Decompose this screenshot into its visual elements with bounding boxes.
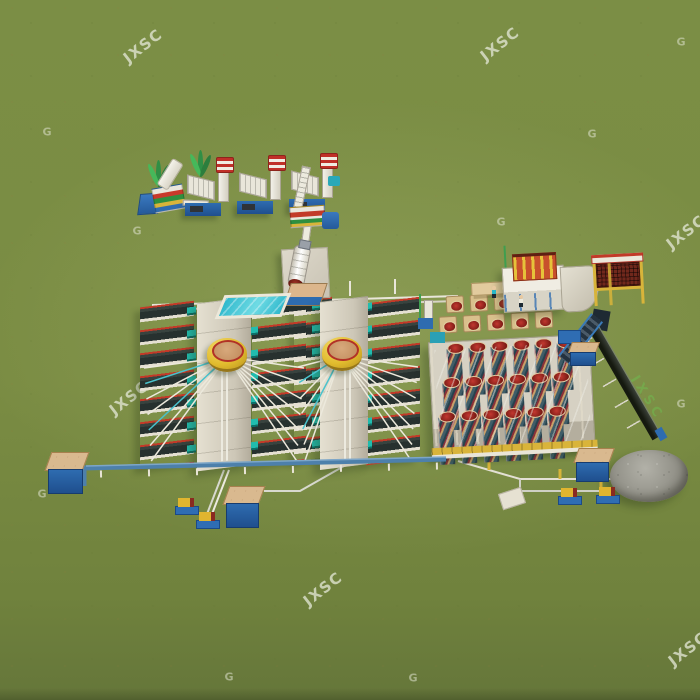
jxsc-watermark: JXSC (120, 25, 167, 67)
jxsc-watermark: JXSC (665, 628, 700, 670)
g-watermark: G (42, 126, 51, 139)
spiral-distributor-head (446, 295, 465, 313)
elevator-column (218, 160, 229, 202)
g-watermark: G (408, 672, 417, 685)
hopper-frame (593, 262, 645, 307)
machine-base (185, 203, 221, 216)
machine-base (237, 201, 273, 214)
slurry-pump (175, 498, 193, 515)
pump-box (418, 318, 433, 329)
water-pool (215, 293, 292, 319)
g-watermark: G (587, 128, 596, 141)
sand-tank (570, 342, 598, 366)
g-watermark: G (676, 36, 685, 49)
slurry-pump (596, 487, 618, 504)
screen-chute (239, 173, 267, 199)
jxsc-watermark: JXSC (300, 568, 347, 610)
screen-chute (187, 175, 215, 201)
g-watermark: G (132, 225, 141, 238)
slurry-pump (196, 512, 218, 529)
concrete-pad (498, 487, 526, 511)
crusher-tower (184, 158, 232, 216)
sand-tank (226, 486, 262, 528)
sand-tank (576, 448, 612, 482)
slurry-pump (558, 488, 580, 505)
tank-body (48, 469, 83, 494)
tailings-stockpile (610, 450, 688, 502)
rotary-slurry-distributor (322, 337, 362, 371)
elevator-column (270, 158, 281, 200)
worker-figure (519, 295, 524, 307)
g-watermark: G (37, 488, 46, 501)
plant-render-scene: JXSC JXSC JXSC JXSC JXSC JXSC JXSC G G G… (0, 0, 700, 700)
g-watermark: G (496, 216, 505, 229)
tank-body (576, 462, 609, 482)
tank-body (226, 503, 259, 528)
jxsc-watermark: JXSC (663, 211, 700, 253)
bottom-shadow-band (0, 688, 700, 700)
g-watermark: G (224, 671, 233, 684)
worker-figure (492, 286, 497, 298)
sand-tank (48, 452, 86, 494)
crusher-tower (236, 156, 284, 214)
spiral-distributor-head (470, 294, 489, 312)
magnetic-separator (289, 205, 325, 228)
vibrating-screen (512, 252, 557, 281)
small-cabinet (328, 176, 340, 186)
jxsc-watermark: JXSC (477, 23, 524, 65)
pump-box (430, 332, 445, 343)
tank-body (570, 352, 596, 366)
g-watermark: G (676, 398, 685, 411)
conveyor-tail-pulley (655, 427, 668, 441)
mesh-hopper-unit (591, 252, 646, 307)
rotary-slurry-distributor (207, 338, 247, 372)
spiral-distributor-head (463, 315, 482, 333)
control-cabinet (322, 212, 339, 229)
